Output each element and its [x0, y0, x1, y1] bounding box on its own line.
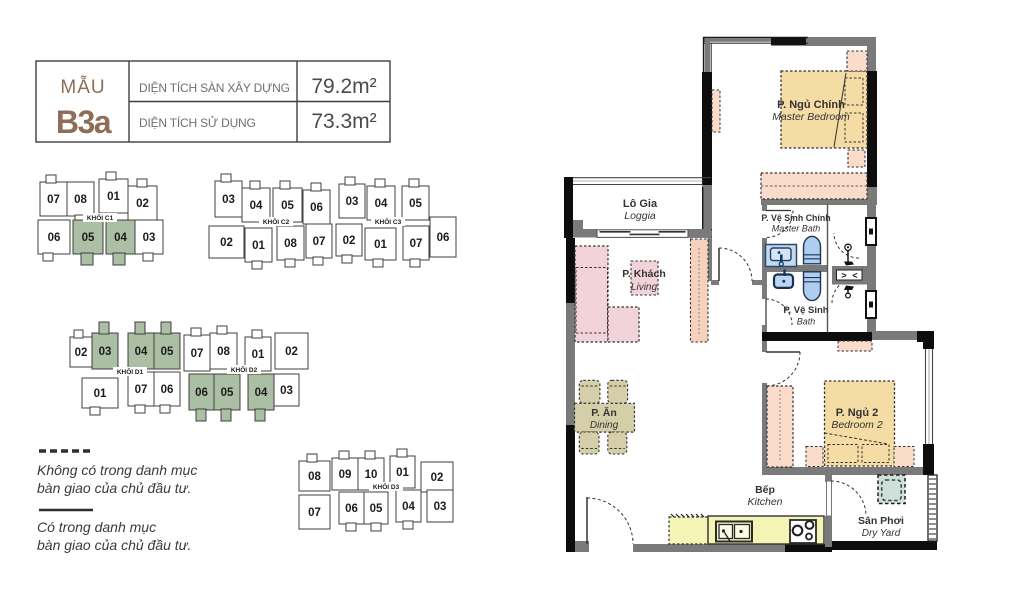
svg-text:04: 04: [375, 198, 388, 210]
svg-text:06: 06: [48, 232, 61, 244]
svg-text:P. Ăn: P. Ăn: [591, 406, 616, 419]
svg-text:Master Bedroom: Master Bedroom: [772, 111, 850, 123]
svg-text:Bath: Bath: [797, 317, 816, 327]
svg-text:05: 05: [161, 346, 174, 358]
svg-text:09: 09: [339, 469, 352, 481]
svg-text:02: 02: [285, 346, 298, 358]
svg-text:DIỆN TÍCH SỬ DỤNG: DIỆN TÍCH SỬ DỤNG: [139, 115, 256, 130]
svg-text:05: 05: [370, 503, 383, 515]
svg-text:P. Vệ Sinh: P. Vệ Sinh: [783, 305, 828, 316]
svg-text:07: 07: [47, 194, 60, 206]
svg-text:MẪU: MẪU: [60, 76, 105, 98]
svg-text:Sân Phơi: Sân Phơi: [858, 515, 904, 527]
svg-text:05: 05: [82, 232, 95, 244]
svg-text:Master Bath: Master Bath: [772, 224, 821, 234]
svg-text:08: 08: [308, 471, 321, 483]
svg-text:06: 06: [161, 384, 174, 396]
svg-text:03: 03: [222, 194, 235, 206]
svg-text:07: 07: [191, 348, 204, 360]
svg-text:02: 02: [343, 235, 356, 247]
svg-text:06: 06: [437, 232, 450, 244]
svg-text:06: 06: [195, 387, 208, 399]
svg-text:05: 05: [409, 198, 422, 210]
svg-text:10: 10: [365, 469, 378, 481]
svg-text:03: 03: [280, 385, 293, 397]
svg-text:DIỆN TÍCH SÀN XÂY DỰNG: DIỆN TÍCH SÀN XÂY DỰNG: [139, 80, 290, 95]
svg-text:01: 01: [396, 467, 409, 479]
svg-text:07: 07: [313, 236, 326, 248]
svg-text:07: 07: [135, 384, 148, 396]
svg-text:04: 04: [255, 387, 268, 399]
svg-text:Có trong danh mục: Có trong danh mục: [37, 519, 156, 535]
svg-text:04: 04: [114, 232, 127, 244]
svg-text:06: 06: [310, 202, 323, 214]
svg-text:Dining: Dining: [590, 420, 619, 431]
svg-text:Lô Gia: Lô Gia: [623, 198, 658, 210]
svg-text:P. Vệ Sinh Chính: P. Vệ Sinh Chính: [761, 213, 830, 223]
svg-text:01: 01: [107, 191, 120, 203]
svg-text:03: 03: [346, 196, 359, 208]
svg-text:Kitchen: Kitchen: [747, 496, 782, 508]
svg-text:01: 01: [94, 388, 107, 400]
svg-text:07: 07: [308, 507, 321, 519]
svg-text:06: 06: [345, 503, 358, 515]
svg-text:Dry Yard: Dry Yard: [862, 528, 901, 539]
svg-text:03: 03: [434, 501, 447, 513]
svg-text:B3a: B3a: [56, 104, 112, 140]
svg-text:01: 01: [252, 240, 265, 252]
svg-text:bàn giao của chủ đầu tư.: bàn giao của chủ đầu tư.: [37, 480, 191, 496]
svg-text:01: 01: [252, 349, 265, 361]
svg-text:05: 05: [221, 387, 234, 399]
svg-text:02: 02: [75, 347, 88, 359]
svg-text:Bedroom 2: Bedroom 2: [831, 419, 883, 431]
svg-text:Không có trong danh mục: Không có trong danh mục: [37, 462, 197, 478]
svg-text:01: 01: [374, 239, 387, 251]
svg-text:02: 02: [431, 472, 444, 484]
svg-text:73.3m²: 73.3m²: [311, 110, 376, 133]
svg-text:bàn giao của chủ đầu tư.: bàn giao của chủ đầu tư.: [37, 537, 191, 553]
svg-text:04: 04: [250, 200, 263, 212]
svg-text:02: 02: [136, 198, 149, 210]
svg-text:04: 04: [402, 501, 415, 513]
svg-text:Loggia: Loggia: [624, 210, 656, 222]
svg-text:08: 08: [284, 238, 297, 250]
svg-text:08: 08: [74, 194, 87, 206]
svg-text:08: 08: [217, 346, 230, 358]
svg-text:>: >: [841, 270, 846, 280]
svg-text:04: 04: [135, 346, 148, 358]
svg-text:Bếp: Bếp: [755, 484, 775, 496]
svg-text:<: <: [852, 270, 857, 280]
svg-text:02: 02: [220, 237, 233, 249]
svg-text:79.2m²: 79.2m²: [311, 75, 376, 98]
svg-text:Living: Living: [631, 282, 658, 293]
svg-text:03: 03: [99, 346, 112, 358]
svg-text:P. Khách: P. Khách: [622, 268, 666, 280]
svg-text:05: 05: [281, 200, 294, 212]
svg-text:03: 03: [143, 232, 156, 244]
svg-text:P. Ngủ Chính: P. Ngủ Chính: [777, 99, 845, 111]
svg-text:P. Ngủ 2: P. Ngủ 2: [836, 407, 879, 419]
svg-text:07: 07: [410, 238, 423, 250]
